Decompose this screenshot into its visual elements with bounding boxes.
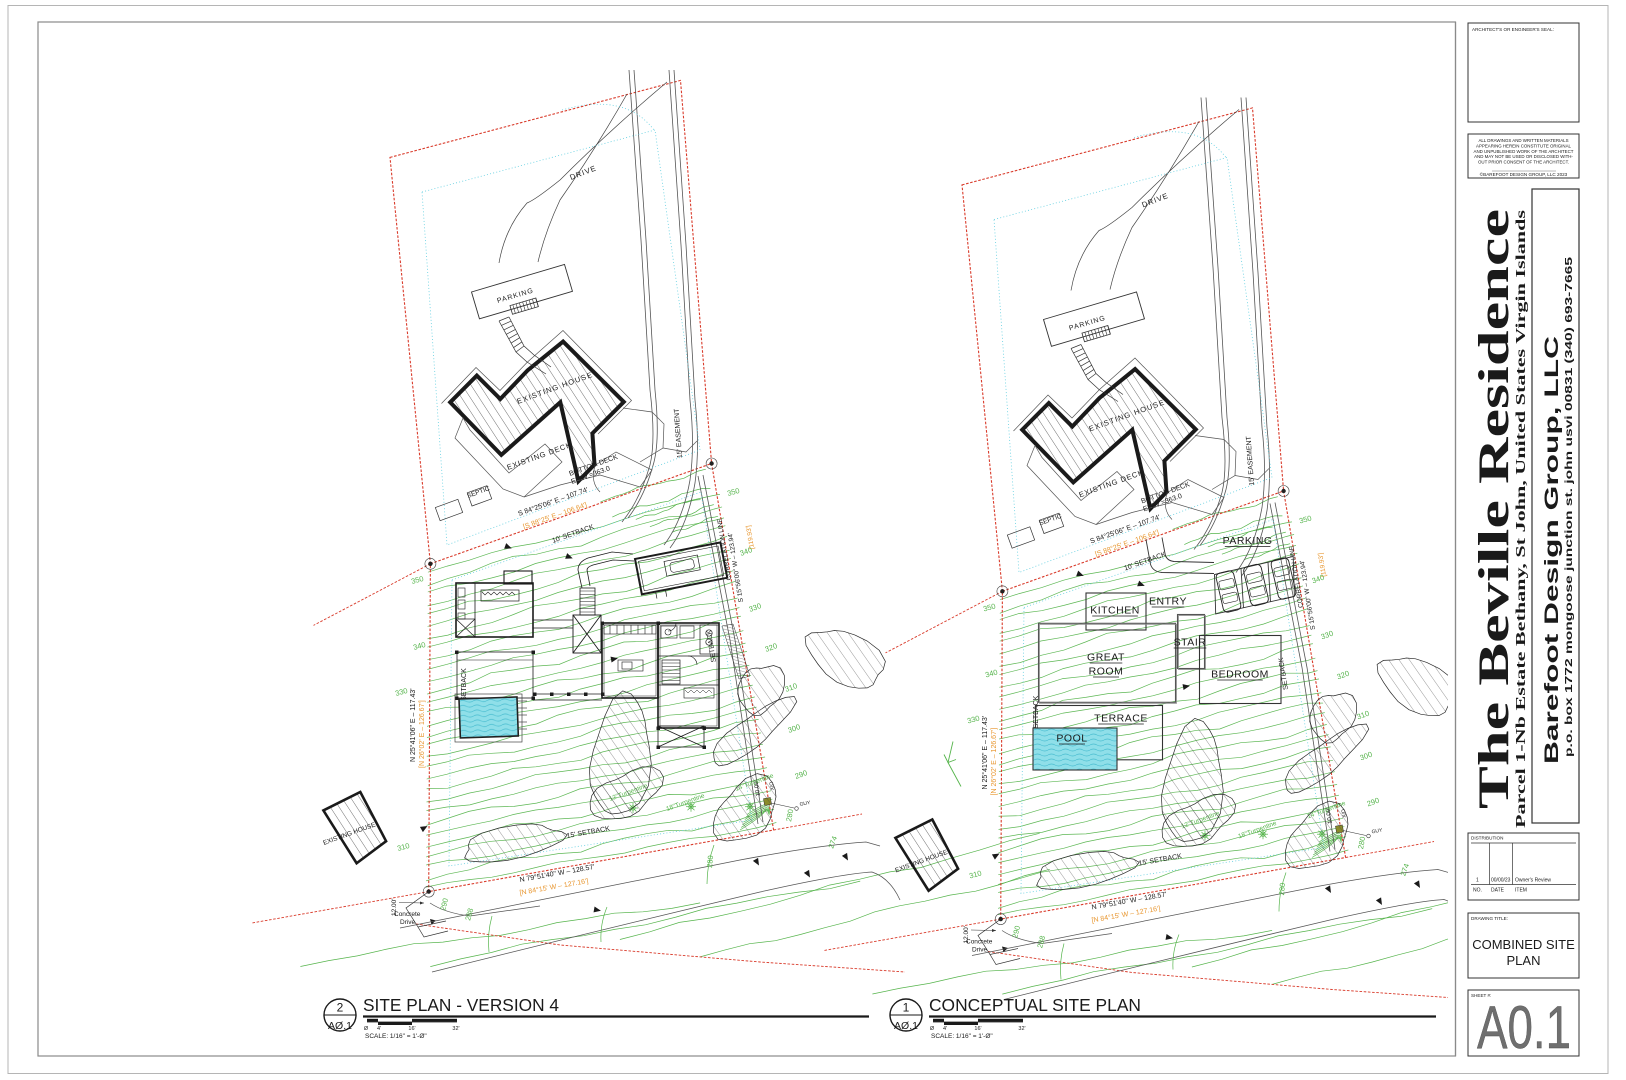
svg-text:Concrete: Concrete [394,911,421,918]
svg-text:16': 16' [408,1026,415,1032]
svg-text:COMBINED SITE: COMBINED SITE [1472,937,1575,952]
svg-text:N 25°41'06" E – 117.43': N 25°41'06" E – 117.43' [409,688,417,762]
svg-text:Ø: Ø [364,1026,369,1032]
svg-text:DISTRIBUTION: DISTRIBUTION [1471,836,1503,841]
svg-text:PARKING: PARKING [1223,535,1273,547]
svg-text:Concrete: Concrete [966,939,993,946]
svg-text:ARCHITECT'S OR ENGINEER'S SEAL: ARCHITECT'S OR ENGINEER'S SEAL: [1472,27,1554,32]
svg-text:AØ.1: AØ.1 [894,1020,918,1032]
svg-text:AND UNPUBLISHED WORK OF THE AR: AND UNPUBLISHED WORK OF THE ARCHITECT [1474,149,1574,154]
svg-text:ENTRY: ENTRY [1149,596,1187,608]
svg-text:Owner's Review: Owner's Review [1515,878,1551,884]
svg-text:AND MAY NOT BE USED OR DISCLOS: AND MAY NOT BE USED OR DISCLOSED WITH- [1474,154,1573,159]
svg-text:Parcel 1-Nb Estate Bethany, St: Parcel 1-Nb Estate Bethany, St John, Uni… [1513,210,1528,828]
svg-text:DATE: DATE [1491,888,1505,894]
svg-text:280: 280 [705,855,715,868]
svg-text:Drive: Drive [400,919,416,926]
svg-text:280: 280 [1277,882,1287,895]
svg-text:POOL: POOL [1056,733,1087,745]
svg-text:SITE PLAN - VERSION 4: SITE PLAN - VERSION 4 [363,995,559,1015]
svg-text:STAIR: STAIR [1174,637,1207,649]
svg-text:SCALE: 1/16" = 1'-Ø": SCALE: 1/16" = 1'-Ø" [931,1033,993,1040]
svg-text:p.o. box 1772 mongoose junctio: p.o. box 1772 mongoose junction st. john… [1563,257,1575,757]
svg-text:SCALE: 1/16" = 1'-Ø": SCALE: 1/16" = 1'-Ø" [365,1033,427,1040]
svg-text:KITCHEN: KITCHEN [1090,605,1140,617]
svg-text:A0.1: A0.1 [1477,994,1571,1061]
svg-text:GREAT: GREAT [1087,652,1125,664]
svg-text:AØ.1: AØ.1 [328,1020,352,1032]
svg-text:2: 2 [337,1001,344,1015]
svg-text:©BAREFOOT DESIGN GROUP, LLC 20: ©BAREFOOT DESIGN GROUP, LLC 2023 [1480,171,1568,177]
svg-text:1: 1 [1476,878,1479,884]
svg-text:The Beville Residence: The Beville Residence [1471,209,1518,809]
svg-text:Drive: Drive [972,947,988,954]
svg-text:CONCEPTUAL SITE PLAN: CONCEPTUAL SITE PLAN [929,995,1141,1015]
svg-text:ROOM: ROOM [1089,666,1124,678]
svg-text:32': 32' [1018,1026,1025,1032]
svg-text:PLAN: PLAN [1507,953,1541,968]
svg-text:Barefoot Design Group, LLC: Barefoot Design Group, LLC [1542,336,1563,764]
svg-text:N 25°41'06" E – 117.43': N 25°41'06" E – 117.43' [981,716,989,790]
svg-text:TERRACE: TERRACE [1094,713,1148,725]
svg-text:16': 16' [974,1026,981,1032]
svg-text:4': 4' [943,1026,947,1032]
svg-text:[N 26°02' E – 126.67']: [N 26°02' E – 126.67'] [418,700,426,768]
svg-text:DRAWING TITLE:: DRAWING TITLE: [1471,916,1508,921]
svg-text:[N 26°02' E – 126.67']: [N 26°02' E – 126.67'] [990,728,998,796]
svg-text:ITEM: ITEM [1515,888,1527,894]
svg-text:12.00': 12.00' [963,926,970,944]
svg-text:ALL DRAWINGS AND WRITTEN MATER: ALL DRAWINGS AND WRITTEN MATERIALS [1478,138,1568,143]
svg-text:12.00': 12.00' [391,898,398,916]
svg-text:1: 1 [903,1001,910,1015]
svg-text:OUT PRIOR CONSENT OF THE ARCHI: OUT PRIOR CONSENT OF THE ARCHITECT. [1478,160,1569,165]
svg-text:Ø: Ø [930,1026,935,1032]
svg-text:4': 4' [377,1026,381,1032]
svg-text:00/00/23: 00/00/23 [1491,878,1511,884]
svg-text:BEDROOM: BEDROOM [1211,669,1269,681]
svg-text:APPEARING HEREIN CONSTITUTE OR: APPEARING HEREIN CONSTITUTE ORIGINAL [1476,143,1571,148]
svg-text:32': 32' [452,1026,459,1032]
svg-text:NO.: NO. [1473,888,1482,894]
